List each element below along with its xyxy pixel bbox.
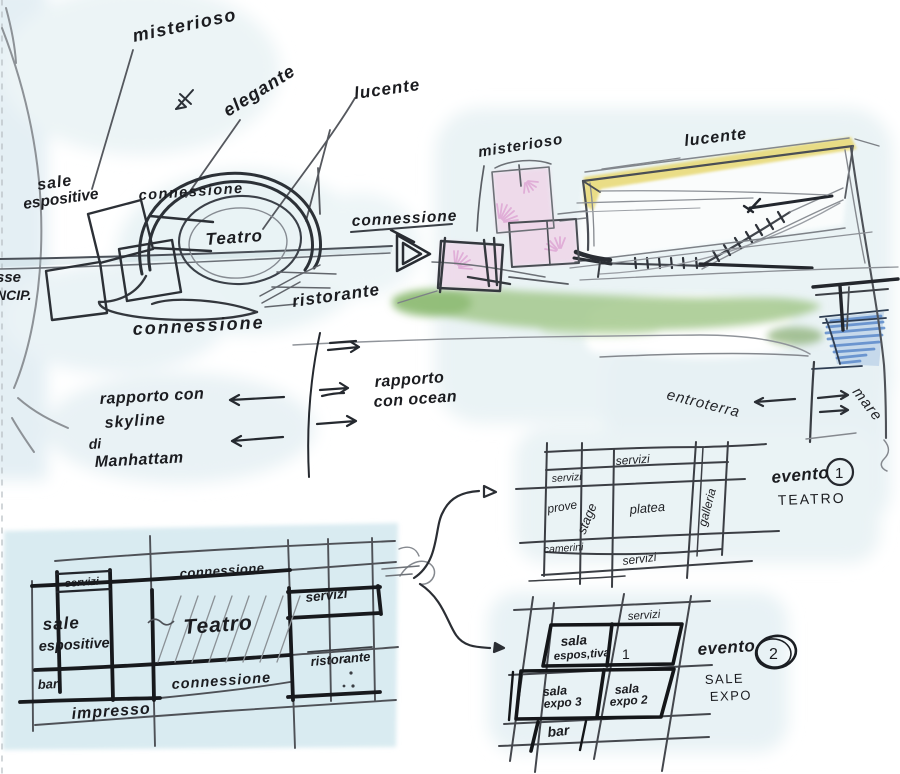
svg-text:di: di xyxy=(88,435,102,452)
svg-text:TEATRO: TEATRO xyxy=(778,490,846,508)
svg-text:Teatro: Teatro xyxy=(183,611,254,639)
svg-text:bar: bar xyxy=(547,722,572,740)
svg-text:EXPO: EXPO xyxy=(710,688,753,704)
svg-text:1: 1 xyxy=(622,646,630,662)
svg-text:2: 2 xyxy=(769,646,778,663)
svg-text:sse: sse xyxy=(0,269,21,286)
svg-text:NCIP.: NCIP. xyxy=(0,287,32,303)
svg-text:platea: platea xyxy=(628,499,666,517)
svg-text:SALE: SALE xyxy=(705,671,745,687)
svg-text:1: 1 xyxy=(835,465,843,482)
svg-text:servizi: servizi xyxy=(615,452,650,468)
svg-text:servizi: servizi xyxy=(64,576,100,590)
svg-text:sala: sala xyxy=(560,632,588,649)
svg-text:expo 2: expo 2 xyxy=(609,692,648,709)
svg-text:expo 3: expo 3 xyxy=(543,694,582,711)
svg-text:evento: evento xyxy=(697,636,756,659)
svg-text:servizi: servizi xyxy=(551,471,582,485)
svg-text:sale: sale xyxy=(42,613,80,634)
svg-text:bar: bar xyxy=(37,676,59,692)
svg-text:Teatro: Teatro xyxy=(205,226,264,249)
svg-text:servizi: servizi xyxy=(627,609,661,623)
